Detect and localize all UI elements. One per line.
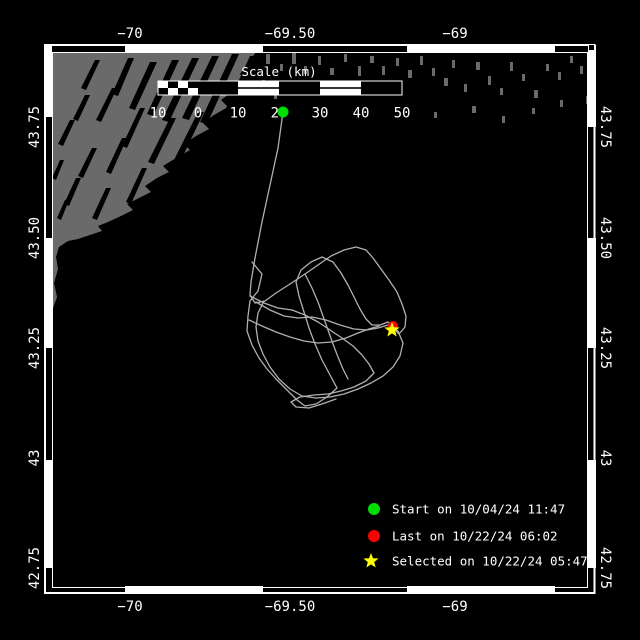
- lat-label-left: 43.75: [27, 106, 43, 148]
- scale-tick-label: 10: [230, 106, 247, 122]
- lat-label-left: 43: [27, 450, 43, 467]
- scale-tick-label: 30: [312, 106, 329, 122]
- scale-bar-title: Scale (km): [241, 64, 316, 79]
- legend: Start on 10/04/24 11:47 Last on 10/22/24…: [363, 502, 587, 569]
- lat-label-right: 43.75: [597, 106, 613, 148]
- lat-label-right: 43.50: [597, 217, 613, 259]
- legend-start-icon: [368, 503, 380, 515]
- legend-selected-label: Selected on 10/22/24 05:47: [392, 554, 588, 569]
- lon-label-bottom: −69: [442, 599, 467, 615]
- legend-last-label: Last on 10/22/24 06:02: [392, 529, 558, 544]
- lon-label-top: −70: [117, 26, 142, 42]
- lon-label-bottom: −70: [117, 599, 142, 615]
- scale-tick-label: 10: [150, 106, 167, 122]
- map-canvas: Scale (km) 10 0 10 20 30 40 50: [0, 0, 640, 640]
- plot-window: Scale (km) 10 0 10 20 30 40 50: [0, 0, 640, 640]
- scale-tick-label: 0: [194, 106, 202, 122]
- lat-label-left: 43.50: [27, 217, 43, 259]
- legend-last-icon: [368, 530, 380, 542]
- scale-tick-label: 50: [394, 106, 411, 122]
- frame-corner-notch: [589, 45, 594, 50]
- lon-label-bottom: −69.50: [265, 599, 316, 615]
- lat-label-right: 42.75: [597, 547, 613, 589]
- lat-label-left: 43.25: [27, 327, 43, 369]
- lon-label-top: −69.50: [265, 26, 316, 42]
- legend-start-label: Start on 10/04/24 11:47: [392, 502, 565, 517]
- start-marker[interactable]: [278, 107, 289, 118]
- lon-label-top: −69: [442, 26, 467, 42]
- scale-tick-label: 40: [353, 106, 370, 122]
- lat-label-left: 42.75: [27, 547, 43, 589]
- lat-label-right: 43: [597, 450, 613, 467]
- lat-label-right: 43.25: [597, 327, 613, 369]
